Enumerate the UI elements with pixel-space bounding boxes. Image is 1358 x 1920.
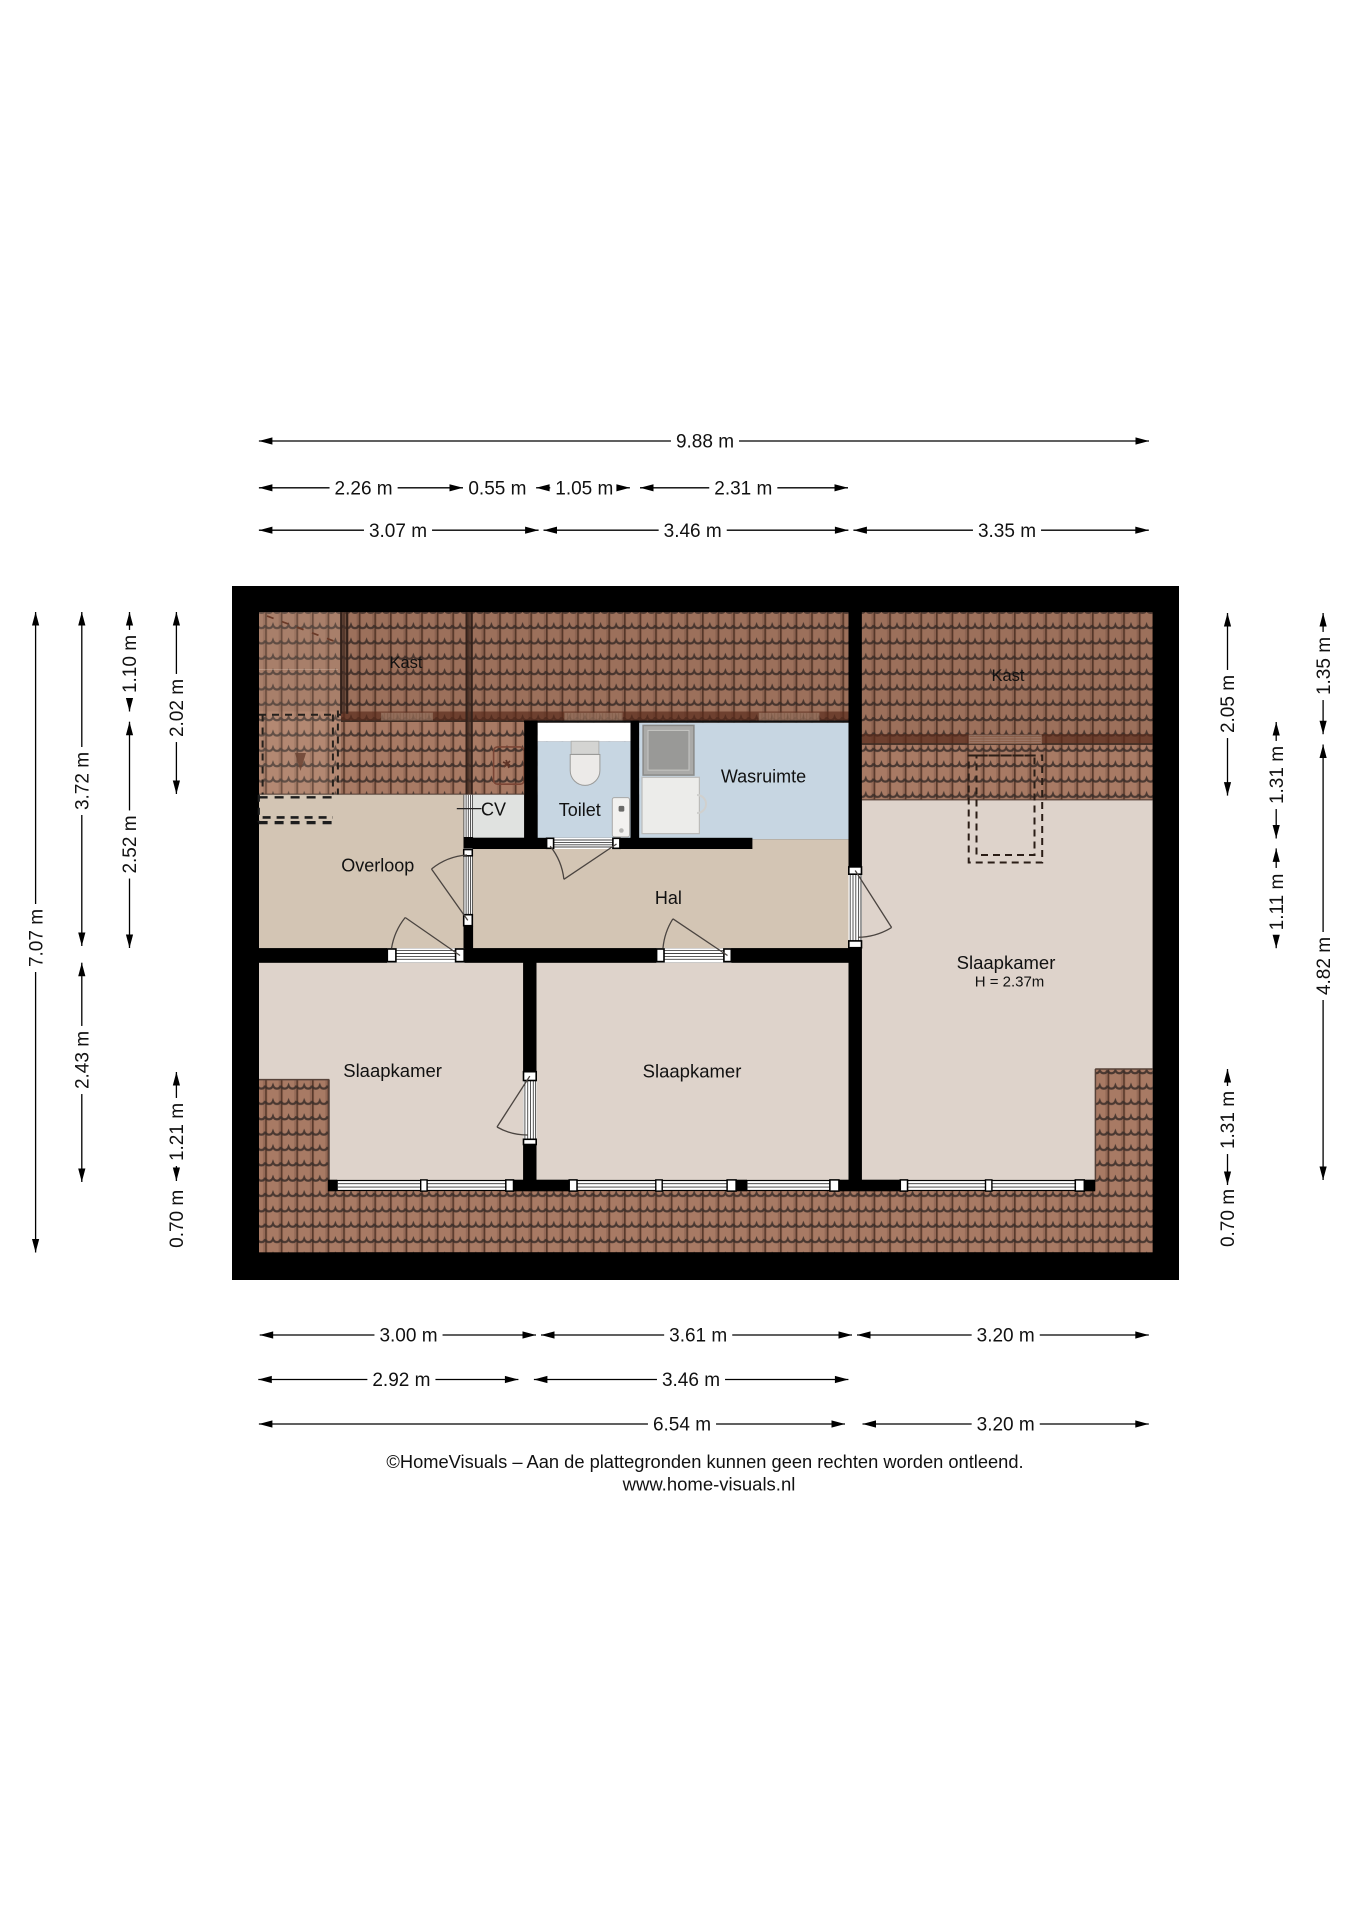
svg-text:CV: CV <box>481 799 506 819</box>
svg-text:1.31 m: 1.31 m <box>1218 1091 1239 1149</box>
svg-text:1.10 m: 1.10 m <box>120 635 141 693</box>
svg-text:1.31 m: 1.31 m <box>1267 746 1288 804</box>
svg-text:2.26 m: 2.26 m <box>335 479 393 500</box>
svg-text:©HomeVisuals – Aan de plattegr: ©HomeVisuals – Aan de plattegronden kunn… <box>386 1451 1023 1472</box>
svg-text:Kast: Kast <box>991 667 1024 685</box>
svg-text:Wasruimte: Wasruimte <box>721 767 806 787</box>
svg-text:Slaapkamer: Slaapkamer <box>343 1060 442 1081</box>
svg-text:1.35 m: 1.35 m <box>1314 637 1335 695</box>
svg-text:7.07 m: 7.07 m <box>26 909 47 967</box>
svg-text:3.20 m: 3.20 m <box>977 1326 1035 1347</box>
svg-text:9.88 m: 9.88 m <box>676 432 734 453</box>
svg-text:Slaapkamer: Slaapkamer <box>643 1060 742 1081</box>
svg-text:3.07 m: 3.07 m <box>369 521 427 542</box>
svg-text:www.home-visuals.nl: www.home-visuals.nl <box>622 1474 796 1495</box>
svg-text:3.61 m: 3.61 m <box>669 1326 727 1347</box>
svg-text:2.02 m: 2.02 m <box>167 679 188 737</box>
svg-text:2.43 m: 2.43 m <box>72 1031 93 1089</box>
svg-text:Slaapkamer: Slaapkamer <box>957 952 1056 973</box>
svg-text:Toilet: Toilet <box>559 800 601 820</box>
svg-text:Hal: Hal <box>655 888 682 908</box>
svg-text:2.92 m: 2.92 m <box>372 1370 430 1391</box>
svg-text:1.11 m: 1.11 m <box>1267 874 1288 931</box>
svg-text:Kast: Kast <box>389 654 422 672</box>
svg-text:3.20 m: 3.20 m <box>977 1415 1035 1436</box>
svg-text:0.55 m: 0.55 m <box>468 479 526 500</box>
svg-text:3.35 m: 3.35 m <box>978 521 1036 542</box>
svg-text:2.31 m: 2.31 m <box>714 479 772 500</box>
svg-text:3.46 m: 3.46 m <box>664 521 722 542</box>
svg-text:2.52 m: 2.52 m <box>120 815 141 873</box>
svg-text:2.05 m: 2.05 m <box>1218 675 1239 733</box>
svg-text:0.70 m: 0.70 m <box>1218 1189 1239 1247</box>
svg-text:3.46 m: 3.46 m <box>662 1370 720 1391</box>
svg-text:0.70 m: 0.70 m <box>167 1190 188 1248</box>
svg-text:4.82 m: 4.82 m <box>1314 937 1335 995</box>
svg-text:3.00 m: 3.00 m <box>379 1326 437 1347</box>
svg-text:H = 2.37m: H = 2.37m <box>975 973 1045 990</box>
svg-text:6.54 m: 6.54 m <box>653 1415 711 1436</box>
svg-text:1.05 m: 1.05 m <box>555 479 613 500</box>
svg-text:Overloop: Overloop <box>341 855 414 875</box>
svg-text:3.72 m: 3.72 m <box>73 752 94 810</box>
svg-text:1.21 m: 1.21 m <box>167 1103 188 1161</box>
